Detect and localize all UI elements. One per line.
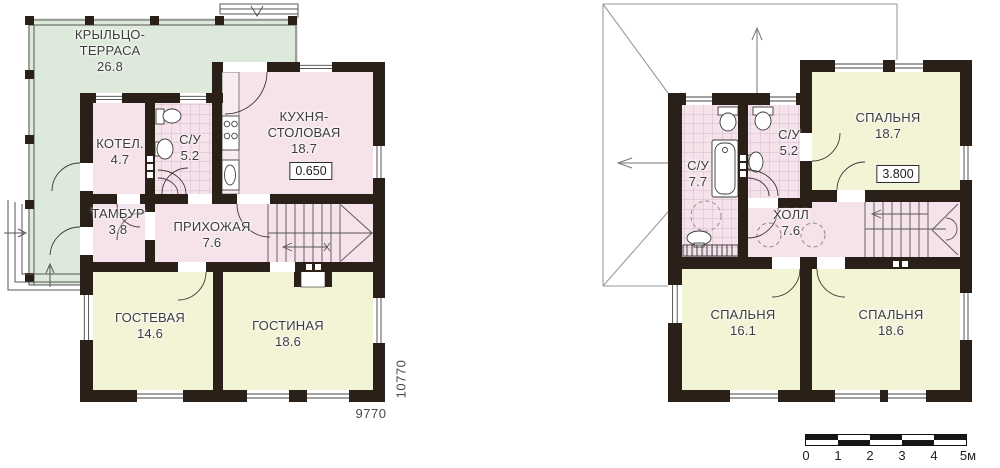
- stove-icon: [222, 116, 239, 150]
- room-label-vestibule: ТАМБУР 3.8: [91, 206, 144, 238]
- entry-steps-top: [220, 4, 298, 18]
- scale-tick-label: 5м: [960, 448, 976, 463]
- arrow-up-icon: [752, 28, 762, 98]
- scale-tick-label: 1: [834, 448, 841, 463]
- first-floor-plan: [4, 4, 385, 402]
- floor-level-mark-1: 0.650: [289, 162, 332, 180]
- room-label-wc3: С/У 5.2: [778, 127, 800, 159]
- kitchen-counter: [222, 72, 239, 194]
- room-label-bedroom3: СПАЛЬНЯ 18.6: [859, 307, 924, 339]
- room-label-hall: ХОЛЛ 7.6: [773, 207, 809, 239]
- scale-bar: 0 1 2 3 4 5м: [806, 435, 966, 464]
- kitchen-sink-icon: [222, 160, 239, 190]
- toilet-icon: [156, 109, 181, 124]
- room-label-boiler: КОТЕЛ. 4.7: [96, 136, 144, 168]
- room-label-kitchen: КУХНЯ- СТОЛОВАЯ 18.7: [268, 109, 341, 157]
- sink-icon: [155, 139, 173, 159]
- scale-tick-label: 2: [866, 448, 873, 463]
- floor-plan-drawing: [0, 0, 1000, 468]
- dimension-width: 9770: [356, 406, 387, 421]
- room-label-bedroom2: СПАЛЬНЯ 16.1: [711, 307, 776, 339]
- room-label-wc2: С/У 7.7: [687, 158, 709, 190]
- room-label-hallway: ПРИХОЖАЯ 7.6: [173, 219, 250, 251]
- scale-bar-labels: 0 1 2 3 4 5м: [806, 448, 966, 464]
- second-floor-plan: [603, 4, 972, 402]
- dimension-depth: 10770: [394, 360, 409, 399]
- room-label-terrace: КРЫЛЬЦО- ТЕРРАСА 26.8: [75, 27, 145, 75]
- scale-tick-label: 0: [802, 448, 809, 463]
- room-label-livingroom: ГОСТИНАЯ 18.6: [252, 318, 324, 350]
- bathtub-icon: [712, 140, 738, 197]
- floor-level-mark-2: 3.800: [876, 165, 919, 183]
- room-label-wc1: С/У 5.2: [179, 132, 201, 164]
- scale-tick-label: 3: [898, 448, 905, 463]
- room-label-guestroom: ГОСТЕВАЯ 14.6: [115, 310, 185, 342]
- scale-tick-label: 4: [930, 448, 937, 463]
- scale-bar-graphic: [806, 435, 966, 445]
- floor-plan-page: КРЫЛЬЦО- ТЕРРАСА 26.8 КОТЕЛ. 4.7 С/У 5.2…: [0, 0, 1000, 468]
- sink-icon: [748, 152, 763, 172]
- room-label-bedroom1: СПАЛЬНЯ 18.7: [856, 110, 921, 142]
